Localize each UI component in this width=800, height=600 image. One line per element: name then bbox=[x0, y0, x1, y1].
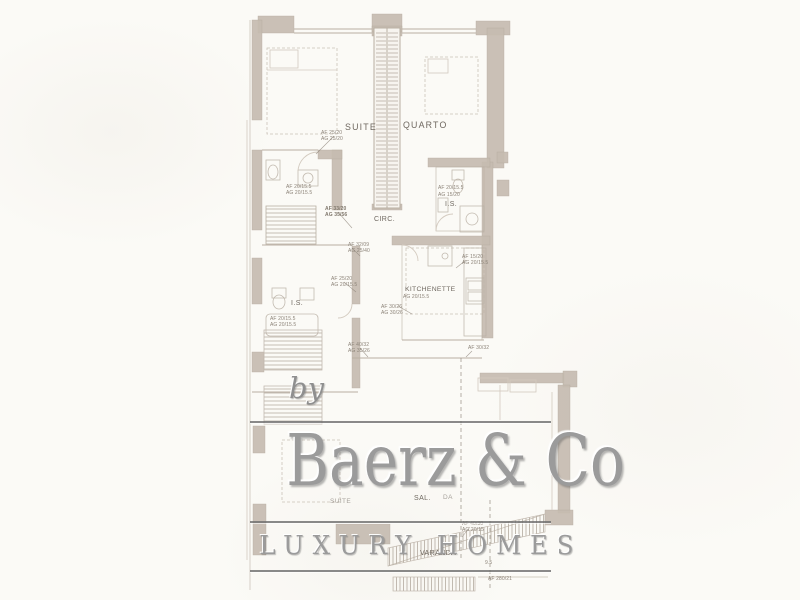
window-annotation: AG 20/15.5 bbox=[462, 260, 488, 266]
watermark-tagline-text: LUXURY HOMES bbox=[259, 533, 582, 559]
service-shaft bbox=[374, 28, 400, 208]
room-label-quarto: QUARTO bbox=[403, 120, 448, 130]
window-annotation: AG 30/26 bbox=[381, 310, 403, 316]
watermark-by-text: by bbox=[289, 371, 324, 405]
bed-outline-quarto bbox=[425, 57, 478, 114]
window-annotation: AF 30/32 bbox=[468, 345, 489, 351]
bed-outline-suite bbox=[267, 48, 337, 134]
window-annotation: AG 20/15.5 bbox=[286, 190, 312, 196]
window-annotation: AG 25/20 bbox=[321, 136, 343, 142]
room-label-circ: CIRC. bbox=[374, 216, 395, 223]
window-annotation: AG 20/15.5 bbox=[270, 322, 296, 328]
room-label-suite: SUITE bbox=[345, 122, 377, 132]
room-label-is-right: I.S. bbox=[445, 201, 457, 208]
shower-hatch bbox=[266, 206, 316, 244]
scanned-floor-plan-page: SUITE QUARTO CIRC. I.S. KITCHENETTE I.S.… bbox=[0, 0, 800, 600]
closet-hatch bbox=[264, 330, 322, 370]
window-annotation: AG 20/15.5 bbox=[331, 282, 357, 288]
room-label-is-left: I.S. bbox=[291, 300, 303, 307]
window-annotation: AG 15/20 bbox=[438, 192, 460, 198]
room-label-kitchenette: KITCHENETTE bbox=[405, 286, 456, 293]
window-annotation: AG 35/26 bbox=[348, 348, 370, 354]
floor-plan-drawing: SUITE QUARTO CIRC. I.S. KITCHENETTE I.S.… bbox=[0, 0, 800, 600]
watermark-rule-bottom bbox=[250, 570, 551, 572]
window-annotation: AF 280/21 bbox=[488, 576, 512, 582]
window-annotation: AG 20/15.5 bbox=[403, 294, 429, 300]
window-annotation: AG 35/56 bbox=[325, 212, 347, 218]
balcony-edge-hatch bbox=[393, 577, 475, 591]
window-annotation: AF 20/15.5 bbox=[438, 185, 464, 191]
watermark-rule-middle bbox=[250, 521, 551, 523]
watermark-tagline: LUXURY HOMES bbox=[249, 533, 552, 559]
watermark-brand: Baerz & Co bbox=[249, 425, 552, 496]
watermark-brand-text: Baerz & Co bbox=[286, 425, 625, 496]
window-annotation: AG 25/40 bbox=[348, 248, 370, 254]
